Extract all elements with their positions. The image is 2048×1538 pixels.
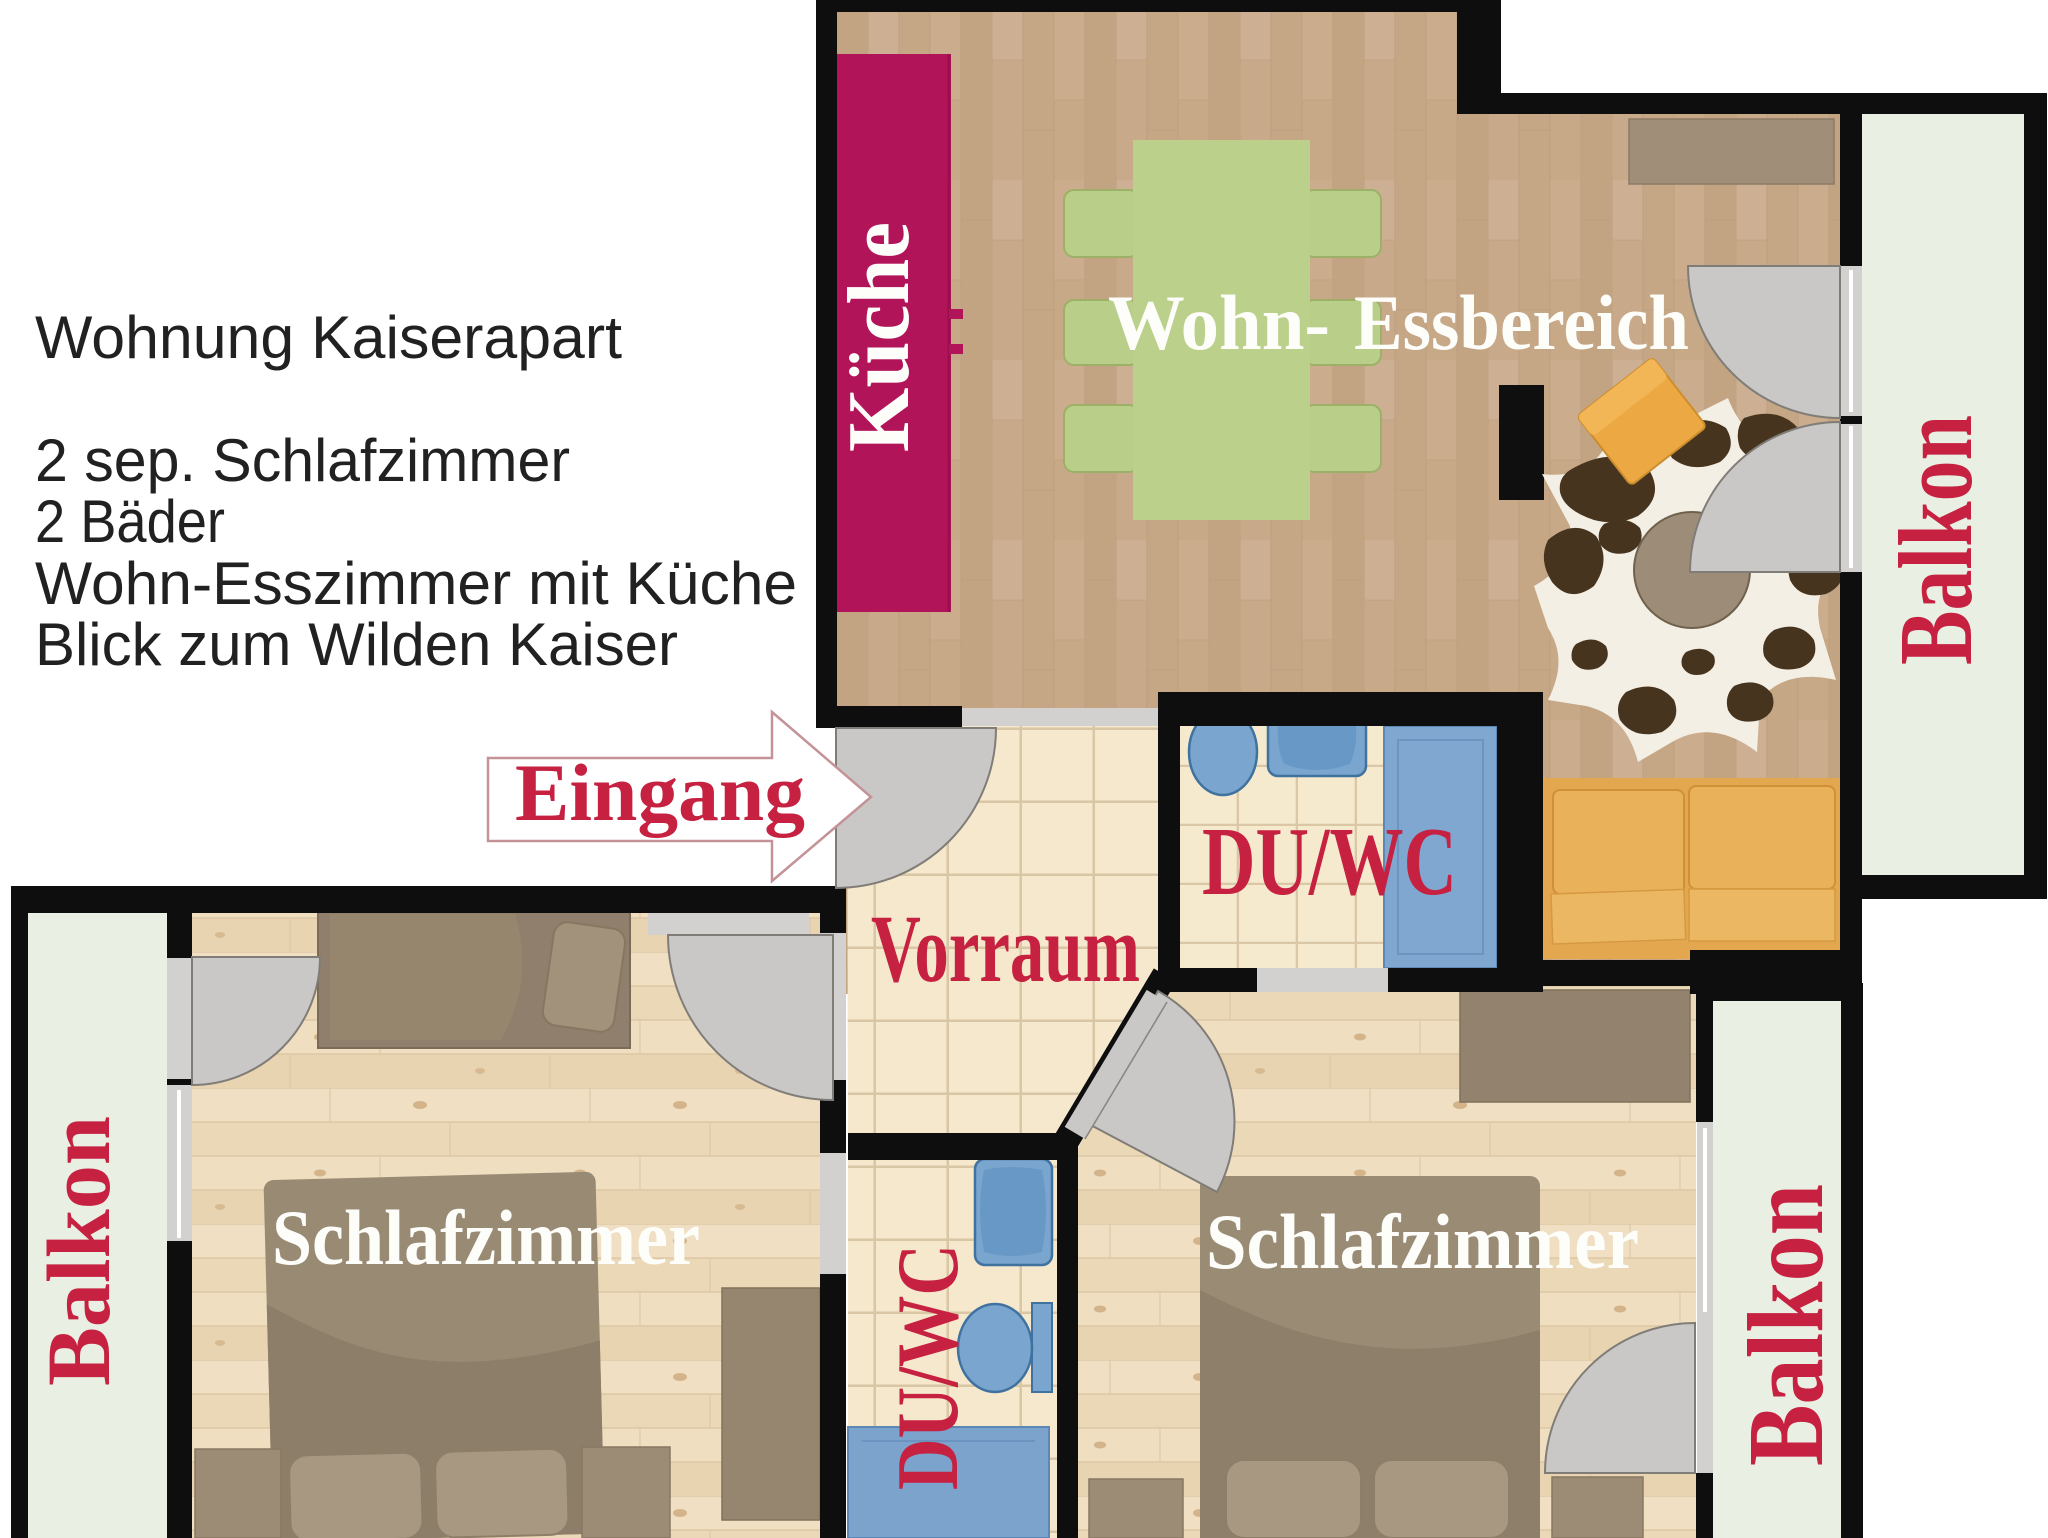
svg-text:Balkon: Balkon [1877,415,1994,665]
svg-text:Schlafzimmer: Schlafzimmer [1206,1198,1639,1285]
svg-text:Schlafzimmer: Schlafzimmer [272,1194,700,1281]
svg-text:Küche: Küche [831,222,928,452]
svg-text:DU/WC: DU/WC [1202,808,1457,915]
svg-text:Balkon: Balkon [1727,1184,1846,1466]
svg-text:Blick zum Wilden Kaiser: Blick zum Wilden Kaiser [35,611,678,678]
svg-text:Eingang: Eingang [515,747,805,838]
svg-text:2 Bäder: 2 Bäder [35,488,225,555]
svg-text:Wohn-: Wohn- [1108,279,1330,366]
svg-text:Balkon: Balkon [30,1116,129,1386]
svg-text:Essbereich: Essbereich [1354,279,1689,366]
svg-text:DU/WC: DU/WC [880,1244,977,1490]
svg-text:2 sep. Schlafzimmer: 2 sep. Schlafzimmer [35,427,570,494]
svg-text:Wohnung Kaiserapart: Wohnung Kaiserapart [35,304,622,371]
svg-text:Wohn-Esszimmer mit Küche: Wohn-Esszimmer mit Küche [35,550,797,617]
svg-text:Vorraum: Vorraum [871,895,1140,1002]
